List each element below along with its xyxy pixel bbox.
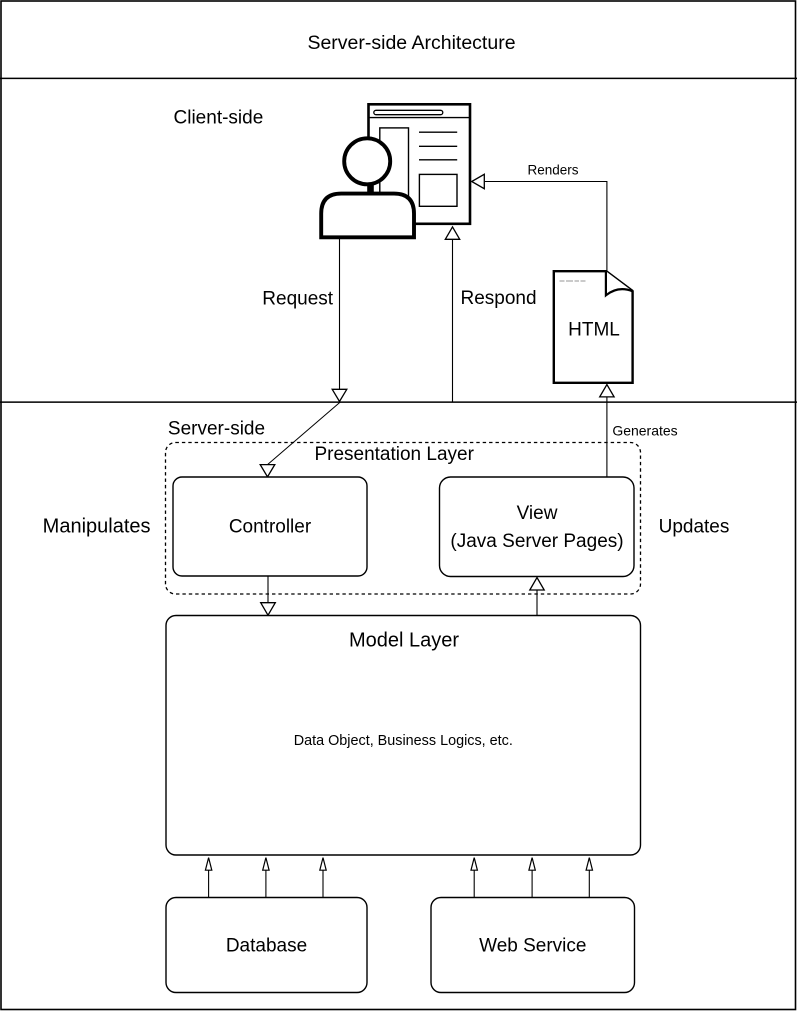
svg-text:Model Layer: Model Layer xyxy=(349,630,459,652)
svg-text:Server-side Architecture: Server-side Architecture xyxy=(307,32,515,54)
svg-text:Request: Request xyxy=(262,289,333,310)
svg-text:Server-side: Server-side xyxy=(168,419,265,440)
svg-text:Web Service: Web Service xyxy=(479,936,586,957)
svg-text:Generates: Generates xyxy=(612,423,677,439)
svg-text:Manipulates: Manipulates xyxy=(43,516,151,538)
svg-text:Renders: Renders xyxy=(527,163,578,178)
svg-text:Controller: Controller xyxy=(229,517,312,538)
svg-text:Respond: Respond xyxy=(460,288,536,309)
svg-text:(Java Server Pages): (Java Server Pages) xyxy=(450,531,623,552)
svg-text:Presentation Layer: Presentation Layer xyxy=(314,444,474,465)
svg-text:HTML: HTML xyxy=(568,320,620,341)
svg-text:Database: Database xyxy=(226,936,307,957)
svg-text:Client-side: Client-side xyxy=(174,108,264,129)
svg-text:Updates: Updates xyxy=(659,517,730,538)
svg-text:Data Object, Business Logics,: Data Object, Business Logics, etc. xyxy=(294,733,513,749)
svg-text:View: View xyxy=(517,503,558,524)
